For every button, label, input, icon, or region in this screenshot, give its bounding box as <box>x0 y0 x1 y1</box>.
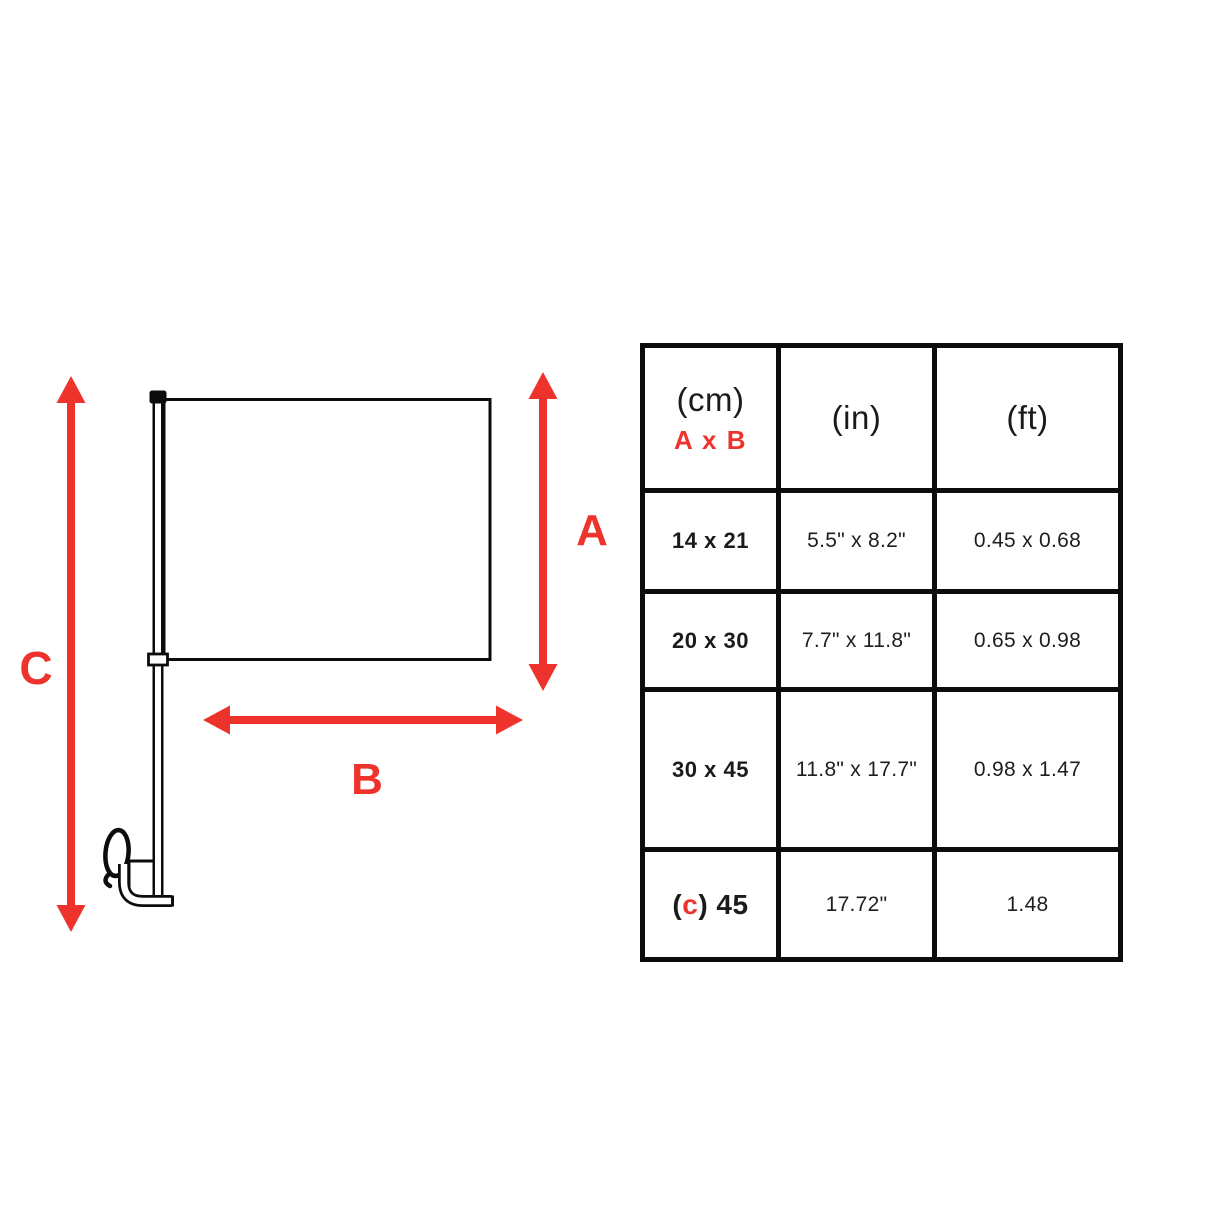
paren-close-and-number: ) 45 <box>698 889 748 920</box>
table-row-in: 7.7" x 11.8" <box>781 594 932 687</box>
size-in-value: 11.8" x 17.7" <box>796 758 917 782</box>
label-flag-width-b: B <box>341 758 393 802</box>
table-row-ft: 1.48 <box>937 852 1118 957</box>
table-row-ft: 0.98 x 1.47 <box>937 692 1118 847</box>
table-row-ft: 0.65 x 0.98 <box>937 594 1118 687</box>
size-cm-value: 30 x 45 <box>672 757 749 783</box>
table-row-cm: 14 x 21 <box>645 493 776 589</box>
car-flag-size-chart: C A B (cm) A x B (in) (ft) 14 x 21 5.5" … <box>0 0 1214 1214</box>
size-ft-value: 0.98 x 1.47 <box>974 758 1081 782</box>
header-axb: A x B <box>674 425 747 456</box>
size-cm-value: 20 x 30 <box>672 628 749 654</box>
size-ft-value: 0.45 x 0.68 <box>974 529 1081 553</box>
dimension-arrow-a <box>529 372 558 691</box>
red-c-letter: c <box>682 889 698 920</box>
table-row-in: 5.5" x 8.2" <box>781 493 932 589</box>
table-row-cm: 20 x 30 <box>645 594 776 687</box>
table-row-in: 17.72" <box>781 852 932 957</box>
size-ft-value: 1.48 <box>1006 893 1048 917</box>
size-in-value: 7.7" x 11.8" <box>802 629 911 653</box>
header-in-unit: (in) <box>832 399 882 437</box>
label-flag-height-a: A <box>566 509 618 553</box>
table-row-in: 11.8" x 17.7" <box>781 692 932 847</box>
header-ft-unit: (ft) <box>1006 399 1048 437</box>
pole-ferrule <box>149 654 168 665</box>
table-row-ft: 0.45 x 0.68 <box>937 493 1118 589</box>
size-in-value: 5.5" x 8.2" <box>807 529 906 553</box>
table-row-cm: 30 x 45 <box>645 692 776 847</box>
label-pole-height-c: C <box>10 645 62 691</box>
pole-size-label: (c) 45 <box>672 889 748 921</box>
header-ft-cell: (ft) <box>937 348 1118 488</box>
paren-open: ( <box>672 889 682 920</box>
header-cm-cell: (cm) A x B <box>645 348 776 488</box>
size-ft-value: 0.65 x 0.98 <box>974 629 1081 653</box>
table-row-cm-pole: (c) 45 <box>645 852 776 957</box>
size-in-value: 17.72" <box>826 893 888 917</box>
dimension-arrow-b <box>203 706 523 735</box>
clip-tip <box>106 873 111 886</box>
size-cm-value: 14 x 21 <box>672 528 749 554</box>
pole-cap <box>150 391 167 404</box>
header-in-cell: (in) <box>781 348 932 488</box>
size-conversion-table: (cm) A x B (in) (ft) 14 x 21 5.5" x 8.2"… <box>640 343 1123 962</box>
flag-outline <box>164 400 490 660</box>
header-cm-unit: (cm) <box>677 381 745 419</box>
